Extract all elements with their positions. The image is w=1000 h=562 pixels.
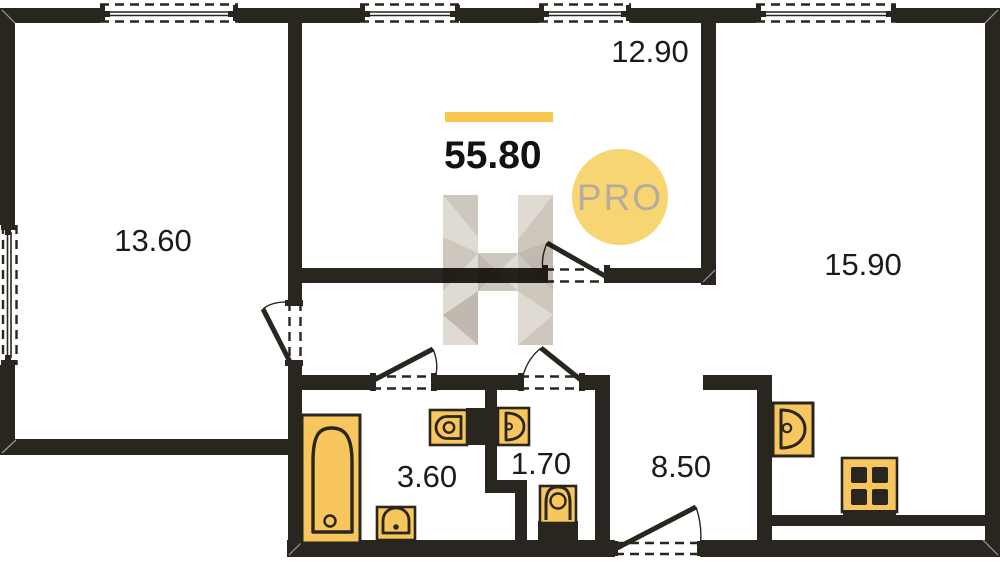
total-area-label: 55.80 — [444, 134, 542, 177]
wall-leftroom-bottom — [0, 439, 302, 455]
door-bathroom — [370, 349, 437, 391]
shower-icon — [538, 486, 578, 542]
wall-vertical-b — [701, 8, 716, 285]
pro-badge-label: PRO — [577, 177, 663, 218]
wall-right — [985, 8, 1000, 557]
wall-vertical-a — [288, 8, 302, 557]
window-icon — [360, 3, 460, 23]
window-icon — [100, 3, 238, 23]
room-label-middle: 12.90 — [611, 34, 689, 69]
door-wc — [518, 348, 585, 391]
watermark-logo — [443, 195, 553, 345]
wall-kitchen-left — [757, 375, 772, 557]
sink-icon — [377, 507, 415, 540]
room-label-wc: 1.70 — [511, 446, 571, 481]
floor-plan: 55.80 PRO 12.90 13.60 15.90 3.60 1.70 8.… — [0, 0, 1000, 562]
room-label-right: 15.90 — [824, 247, 902, 282]
toilet-icon — [498, 408, 529, 445]
room-label-left: 13.60 — [114, 223, 192, 258]
door-entrance — [612, 507, 703, 557]
total-area-underline — [445, 112, 553, 122]
washbasin-icon — [430, 408, 487, 445]
room-label-hallway: 8.50 — [651, 449, 711, 484]
window-icon — [0, 225, 18, 365]
kitchen-sink-icon — [773, 403, 813, 456]
watermark-letter-h — [443, 195, 553, 345]
wall-bath-divider-lower — [515, 490, 527, 557]
stove-icon — [842, 458, 897, 518]
total-area: 55.80 — [444, 112, 553, 177]
floor-plan-svg: 55.80 PRO 12.90 13.60 15.90 3.60 1.70 8.… — [0, 0, 1000, 562]
window-icon — [539, 3, 631, 23]
window-icon — [756, 3, 896, 23]
door-left-room — [263, 300, 303, 366]
wall-wc-right — [595, 375, 610, 557]
room-label-bathroom: 3.60 — [397, 459, 457, 494]
bathtub-icon — [302, 415, 360, 543]
pro-badge: PRO — [572, 149, 668, 245]
